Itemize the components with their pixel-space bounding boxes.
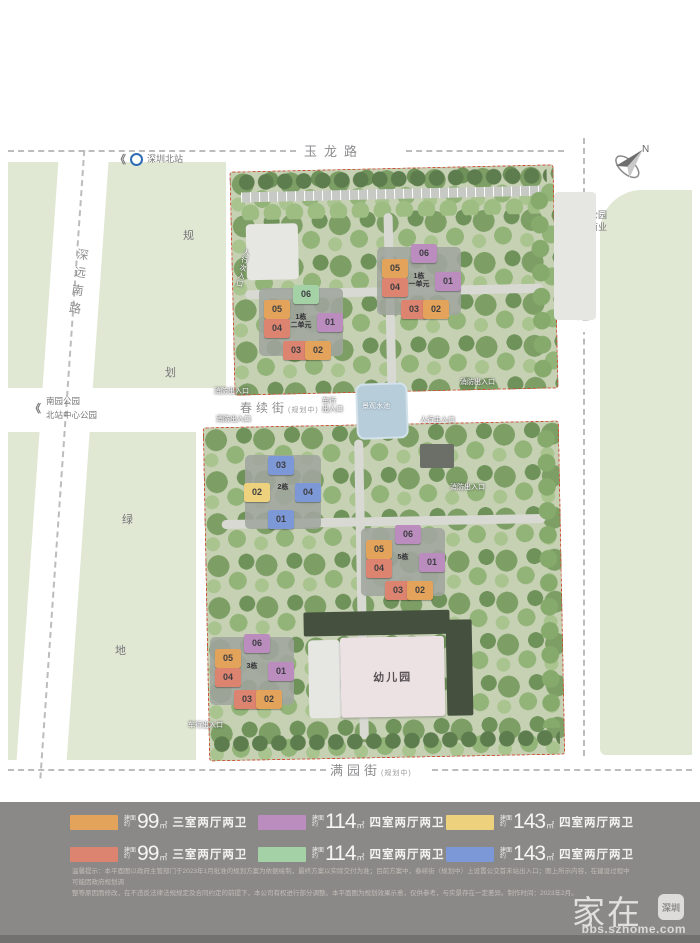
legend-prefix: 建面约 bbox=[500, 816, 512, 828]
cluster-label: 5栋 bbox=[379, 554, 427, 562]
legend-prefix: 建面约 bbox=[124, 816, 136, 828]
legend-unit: ㎡ bbox=[159, 852, 167, 863]
city-block-upper-left bbox=[8, 162, 226, 388]
disclaimer: 温馨提示：本平面图以政府主管部门于2023年1月批准的规划方案为依据绘制，最终方… bbox=[72, 866, 632, 899]
tree-row bbox=[212, 730, 560, 755]
road-dash-top-right bbox=[406, 150, 564, 152]
cluster-label: 1栋 一单元 bbox=[395, 273, 443, 288]
playground-plaza bbox=[246, 223, 299, 280]
road-label-middle: 春续街(规划中) bbox=[240, 399, 319, 416]
city-block-right bbox=[600, 190, 692, 755]
podium-roof bbox=[446, 619, 474, 715]
park-left-label-2: 北站中心公园 bbox=[46, 409, 97, 421]
svg-text:N: N bbox=[642, 144, 649, 155]
kindergarten-yard bbox=[308, 640, 341, 719]
cluster-label: 2栋 bbox=[259, 484, 307, 492]
entrance-label: 消防出入口 bbox=[460, 379, 495, 387]
legend-unit: ㎡ bbox=[357, 820, 365, 831]
legend-area-value: 143 bbox=[513, 810, 545, 834]
tree-column bbox=[529, 189, 553, 379]
legend-swatch bbox=[258, 815, 306, 830]
footer-strip bbox=[0, 935, 700, 943]
legend-item: 建面约99㎡三室两厅两卫 bbox=[70, 843, 258, 865]
watermark-url: bbs.szhome.com bbox=[582, 922, 686, 936]
chevron-left-icon: 《 bbox=[115, 151, 126, 167]
gatehouse-building bbox=[420, 444, 454, 468]
entrance-label: 消防出入口 bbox=[214, 388, 249, 396]
unit-tile: 02 bbox=[423, 300, 449, 319]
disclaimer-line-1: 温馨提示：本平面图以政府主管部门于2023年1月批准的规划方案为依据绘制，最终方… bbox=[72, 866, 632, 888]
cluster-label: 3栋 bbox=[228, 663, 276, 671]
legend-room-desc: 四室两厅两卫 bbox=[559, 846, 634, 862]
metro-icon bbox=[130, 153, 143, 166]
legend-unit: ㎡ bbox=[546, 852, 554, 863]
legend-prefix-text: 约 bbox=[500, 854, 512, 860]
compass: N bbox=[602, 140, 654, 192]
road-dash-bottom-right bbox=[432, 769, 692, 771]
unit-tile: 06 bbox=[395, 525, 421, 544]
watermark-badge: 深圳 bbox=[658, 894, 684, 920]
road-dash-bottom-left bbox=[8, 769, 326, 771]
legend-room-desc: 四室两厅两卫 bbox=[370, 846, 445, 862]
road-bottom-name: 满园街 bbox=[330, 763, 381, 778]
legend-swatch bbox=[258, 847, 306, 862]
legend-prefix: 建面约 bbox=[312, 848, 324, 860]
legend-swatch bbox=[70, 847, 118, 862]
green-char-1: 绿 bbox=[122, 511, 133, 527]
legend-room-desc: 四室两厅两卫 bbox=[559, 814, 634, 830]
park-left-label-1: 南园公园 bbox=[46, 395, 80, 407]
legend-area-value: 99 bbox=[137, 842, 158, 866]
legend-prefix-text: 约 bbox=[312, 822, 324, 828]
road-label-bottom: 满园街(规划中) bbox=[330, 760, 412, 779]
legend-prefix: 建面约 bbox=[124, 848, 136, 860]
entrance-label: 消防出入口 bbox=[216, 416, 251, 424]
plaza-right-top bbox=[554, 192, 596, 320]
legend-unit: ㎡ bbox=[546, 820, 554, 831]
road-middle-note: (规划中) bbox=[288, 407, 319, 414]
chevron-left-icon-2: 《 bbox=[30, 400, 41, 416]
unit-tile: 02 bbox=[305, 341, 331, 360]
legend-prefix-text: 约 bbox=[500, 822, 512, 828]
kindergarten-building: 幼儿园 bbox=[340, 636, 446, 718]
legend-prefix-text: 约 bbox=[312, 854, 324, 860]
site-plan-map: 深远南路 规 划 绿 地 玉龙路 《 深圳北站 N 《 绿芯公园 万象商业 龙华… bbox=[0, 0, 700, 802]
legend-area-value: 99 bbox=[137, 810, 158, 834]
road-middle-name: 春续街 bbox=[240, 401, 288, 415]
legend-item: 建面约114㎡四室两厅两卫 bbox=[258, 811, 446, 833]
metro-station-label: 深圳北站 bbox=[147, 152, 183, 165]
disclaimer-line-2: 整等原因而修改，在不违反法律法规规定及合同约定的前提下，本公司有权进行部分调整。… bbox=[72, 888, 632, 899]
legend-area-value: 114 bbox=[325, 842, 355, 866]
entrance-label: 车行 出入口 bbox=[322, 398, 343, 414]
legend-room-desc: 三室两厅两卫 bbox=[172, 846, 247, 862]
unit-tile: 06 bbox=[244, 634, 270, 653]
pond-label: 景观水池 bbox=[362, 401, 390, 411]
legend-item: 建面约143㎡四室两厅两卫 bbox=[446, 811, 642, 833]
legend-item: 建面约99㎡三室两厅两卫 bbox=[70, 811, 258, 833]
road-label-top: 玉龙路 bbox=[304, 141, 364, 160]
road-bottom-note: (规划中) bbox=[381, 770, 412, 777]
legend-area-value: 114 bbox=[325, 810, 355, 834]
green-char-2: 地 bbox=[115, 642, 126, 658]
legend-swatch bbox=[70, 815, 118, 830]
podium-roof bbox=[303, 610, 449, 637]
plan-char-1: 规 bbox=[183, 227, 194, 243]
unit-tile: 02 bbox=[256, 690, 282, 709]
unit-tile: 02 bbox=[407, 581, 433, 600]
legend-prefix: 建面约 bbox=[312, 816, 324, 828]
entrance-label: 人行主入口 bbox=[420, 417, 455, 425]
legend-swatch bbox=[446, 815, 494, 830]
unit-tile: 06 bbox=[293, 285, 319, 304]
legend-prefix: 建面约 bbox=[500, 848, 512, 860]
legend: 建面约99㎡三室两厅两卫建面约114㎡四室两厅两卫建面约143㎡四室两厅两卫建面… bbox=[70, 811, 642, 865]
legend-room-desc: 四室两厅两卫 bbox=[370, 814, 445, 830]
unit-tile: 01 bbox=[268, 510, 294, 529]
legend-unit: ㎡ bbox=[159, 820, 167, 831]
tree-column bbox=[536, 428, 562, 728]
cluster-label: 1栋 二单元 bbox=[277, 314, 325, 329]
legend-footer: 建面约99㎡三室两厅两卫建面约114㎡四室两厅两卫建面约143㎡四室两厅两卫建面… bbox=[0, 802, 700, 943]
legend-room-desc: 三室两厅两卫 bbox=[172, 814, 247, 830]
landscape-pond bbox=[355, 382, 409, 440]
legend-item: 建面约143㎡四室两厅两卫 bbox=[446, 843, 642, 865]
legend-prefix-text: 约 bbox=[124, 854, 136, 860]
plan-char-2: 划 bbox=[165, 364, 176, 380]
unit-tile: 06 bbox=[411, 244, 437, 263]
legend-area-value: 143 bbox=[513, 842, 545, 866]
legend-swatch bbox=[446, 847, 494, 862]
entrance-label: 消防出入口 bbox=[450, 484, 485, 492]
legend-item: 建面约114㎡四室两厅两卫 bbox=[258, 843, 446, 865]
unit-tile: 03 bbox=[268, 456, 294, 475]
entrance-label: 车行出入口 bbox=[188, 722, 223, 730]
legend-prefix-text: 约 bbox=[124, 822, 136, 828]
legend-unit: ㎡ bbox=[357, 852, 365, 863]
kindergarten-label: 幼儿园 bbox=[373, 668, 412, 685]
